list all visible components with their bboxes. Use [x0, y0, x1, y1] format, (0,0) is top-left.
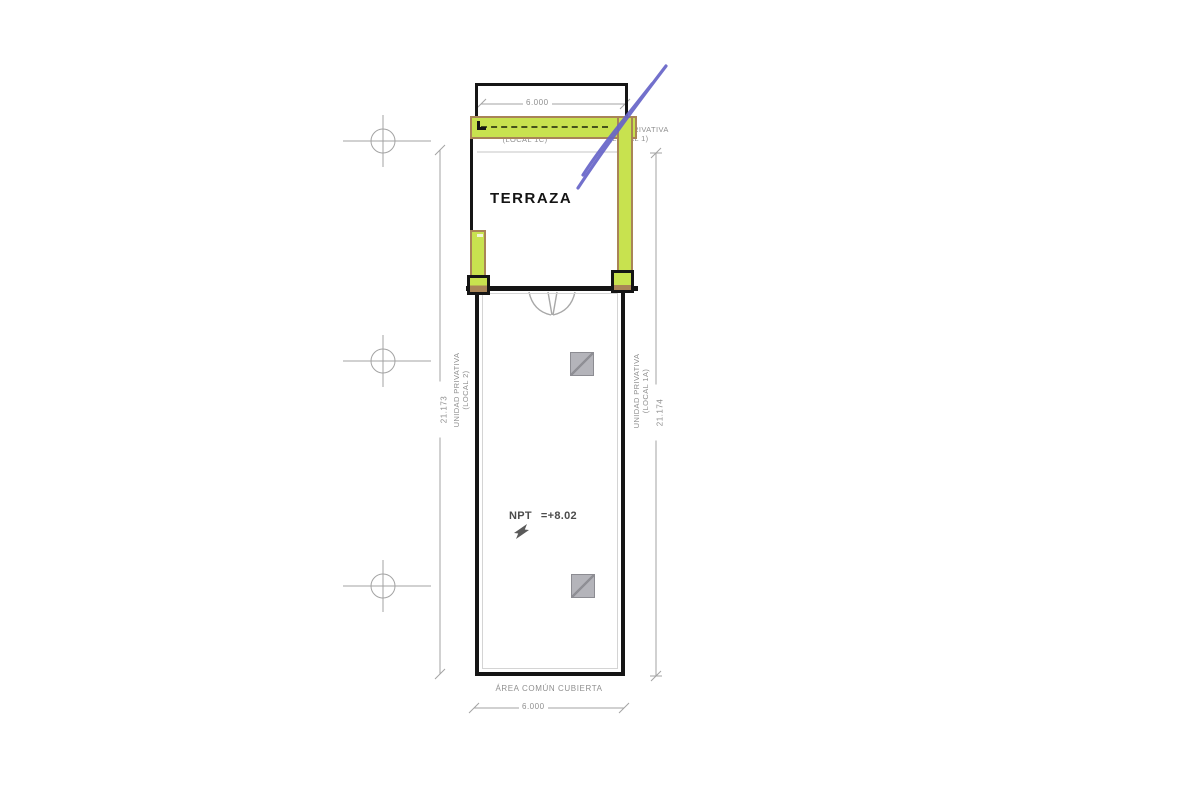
wall-end-mark	[477, 121, 486, 130]
floor-plan-canvas: (LOCAL 1C) UNIDAD PRIVATIVA (LOCAL 1) 6.…	[0, 0, 1200, 807]
unit-left-line2: (LOCAL 2)	[461, 330, 470, 450]
terraza-room-label: TERRAZA	[490, 190, 572, 207]
unit-right-line1: UNIDAD PRIVATIVA	[632, 336, 641, 446]
bottom-dimension-label: 6.000	[519, 702, 548, 711]
highlighted-top-wall	[470, 116, 637, 139]
area-comun-label: ÁREA COMÚN CUBIERTA	[469, 684, 629, 693]
bottom-dimension-line	[469, 703, 629, 713]
wall-centerline	[481, 126, 608, 128]
wall-notch	[477, 234, 483, 237]
corner-column-right	[611, 270, 634, 293]
unit-right-line2: (LOCAL 1A)	[641, 336, 650, 446]
highlighted-right-wall	[617, 116, 633, 276]
unit-right-label: UNIDAD PRIVATIVA (LOCAL 1A)	[632, 336, 650, 446]
unit-left-label: UNIDAD PRIVATIVA (LOCAL 2)	[452, 330, 470, 450]
grid-marker-icon	[343, 335, 431, 387]
grid-marker-icon	[343, 560, 431, 612]
unit-left-line1: UNIDAD PRIVATIVA	[452, 330, 461, 450]
highlighted-left-wall-segment	[470, 230, 486, 278]
right-dimension-label: 21.174	[656, 385, 665, 441]
corner-column-left	[467, 275, 490, 295]
left-dimension-label: 21.173	[440, 382, 449, 438]
grid-marker-icon	[343, 115, 431, 167]
local-room-outline	[475, 286, 625, 676]
